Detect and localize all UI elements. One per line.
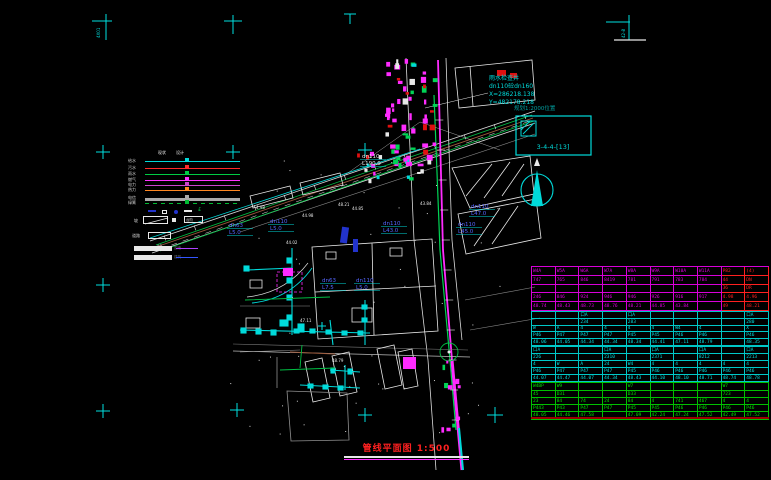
legend-steps-box: 台阶 [184,216,203,223]
corner-note-tr: 42-8 [621,28,626,38]
table-cell [627,285,651,293]
title-underline-accent [344,459,469,460]
corner-annotations: 4X01 42-8 [96,27,626,38]
cad-drawing-canvas[interactable]: 4X01 42-8 [0,0,771,480]
table-cell [603,391,627,398]
legend-row-line [145,203,240,204]
table-cell: W6A [579,267,603,276]
table-cell [674,391,698,398]
table-cell: 48.76 [603,302,627,311]
well-table-water-wells-1: 口A口A口A234283280WA4444W44XP46P47P47P47P45… [531,311,769,346]
table-cell: W9 [556,383,580,391]
table-cell: W8A [627,267,651,276]
table-cell: 36 [722,285,746,293]
table-cell: 2371 [651,354,675,361]
table-cell [745,391,769,398]
legend-square-symbol [172,218,176,222]
svg-text:L5.0: L5.0 [356,285,368,291]
table-cell: W10A [674,267,698,276]
table-cell: 口A [745,347,769,354]
table-cell [674,319,698,326]
table-cell: P46 [651,368,675,375]
table-cell: 8212 [698,354,722,361]
legend-row-label: 热力 [128,187,136,193]
table-cell: 口A [627,312,651,319]
table-cell: 846 [556,293,580,302]
svg-text:dn110: dn110 [362,154,380,160]
table-cell: D33 [627,391,651,398]
pipe-label: dn110L5.0 [268,219,294,232]
title-text: 管线平面图 [363,444,413,454]
pipe-label: dn110L45.0 [456,222,482,235]
table-cell: 4 [745,398,769,405]
table-cell: P47 [579,332,603,339]
spot-elevation: 43.84 [420,201,432,206]
table-cell: 84 [556,398,580,405]
legend-road-label: 道路 [132,233,140,239]
table-cell: 4 [722,361,746,368]
north-arrow [521,158,553,206]
table-cell: P46 [745,332,769,339]
table-cell: P47 [579,368,603,375]
detail-box-label: 3-4-4-[13] [537,143,570,151]
legend-row-marker [185,195,189,199]
table-cell: P43 [556,405,580,412]
well-table-sewer-wells: W4BPW9W7W745D31D337232384742484474146744… [531,382,769,420]
table-cell: 765 [556,276,580,285]
corner-note-tl: 4X01 [96,27,101,38]
table-cell [556,347,580,354]
table-cell: 2213 [745,354,769,361]
legend-header-existing: 现状 [158,150,166,156]
table-cell: 44.85 [651,302,675,311]
table-cell [745,383,769,391]
table-cell: P46 [532,368,556,375]
table-cell: 24 [603,361,627,368]
table-cell: 48.74 [532,302,556,311]
table-cell: 4.96 [745,293,769,302]
legend-row-line [145,174,240,175]
table-cell: 口A [745,312,769,319]
table-cell: D31 [556,391,580,398]
spot-elevation: 48.79 [332,358,344,363]
pipe-label: dn110L190.0 [360,154,386,167]
table-cell: 741 [674,398,698,405]
table-cell: 48.21 [627,302,651,311]
survey-note-line3: X=286218.138 [489,91,535,98]
table-bottom-rule [531,417,769,419]
table-cell: 48.79 [698,339,722,346]
legend-row-marker [185,165,189,169]
svg-text:L5.0: L5.0 [270,226,282,232]
table-cell: W11A [698,267,722,276]
svg-text:dn110: dn110 [471,204,489,210]
table-cell: 946 [603,293,627,302]
table-cell [532,312,556,319]
table-cell [603,312,627,319]
table-cell [674,347,698,354]
table-cell: 747 [532,276,556,285]
table-cell: 4 [651,361,675,368]
well-table-water-wells-2: 口A口A口A口A口A22623102371821222134WA24W44444… [531,346,769,382]
table-cell: 48.78 [745,375,769,382]
legend-road-box: AB [148,232,171,239]
table-cell [698,312,722,319]
table-cell: 8419 [603,276,627,285]
table-cell [556,354,580,361]
table-cell: 44 [722,276,746,285]
table-cell [674,312,698,319]
table-cell: 783 [674,276,698,285]
table-cell: 4 [745,361,769,368]
legend-row-marker [185,187,189,191]
table-cell [579,347,603,354]
table-cell: W [556,361,580,368]
table-cell: 24 [603,398,627,405]
table-cell: P46 [698,405,722,412]
pipe-label: dn110L47.0 [469,204,495,217]
spot-elevation: 47.11 [300,318,312,323]
title-scale: 1:500 [417,444,451,454]
table-cell: 791 [651,276,675,285]
table-cell: 467 [698,398,722,405]
table-cell: 44.10 [651,375,675,382]
table-cell: 48.06 [532,339,556,346]
table-cell: P47 [556,332,580,339]
legend-row-line [145,168,240,169]
svg-text:dn63: dn63 [322,278,336,284]
table-cell: 44.41 [651,339,675,346]
svg-text:dn110: dn110 [458,222,476,228]
legend-slope-box: 坡 [143,216,168,224]
legend-steps-label: 台阶 [186,218,193,223]
table-cell: 784 [698,276,722,285]
table-cell [651,319,675,326]
spot-elevation: 44.85 [352,206,364,211]
table-cell: 23 [532,398,556,405]
table-cell: W5A [556,267,580,276]
legend-header-design: 设计 [176,150,184,156]
table-cell: P46 [722,405,746,412]
pipe-junction-cluster [230,59,500,434]
spot-elevation: 4.98 [256,205,265,210]
table-cell: 74 [579,398,603,405]
pipe-label: dn110L43.0 [381,221,407,234]
survey-note-line1: 雨水检查井 [489,74,519,82]
legend-row-line [145,190,240,191]
table-cell [603,383,627,391]
table-cell: P46 [674,368,698,375]
legend-row-line [145,198,240,201]
table-cell: 916 [674,293,698,302]
table-cell: 280 [745,319,769,326]
table-cell [579,391,603,398]
table-cell: W4 [627,361,651,368]
table-cell: 口A [579,312,603,319]
table-cell [603,285,627,293]
table-cell: 48.73 [579,302,603,311]
table-cell: 口A [698,347,722,354]
legend-row-line [145,180,240,181]
table-cell [722,332,746,339]
table-cell [722,339,746,346]
table-cell: 48.71 [698,375,722,382]
table-cell: 48.43 [627,375,651,382]
table-cell: P45 [627,368,651,375]
table-cell [579,285,603,293]
table-cell: 84 [627,398,651,405]
table-cell: 48.34 [627,339,651,346]
table-cell [722,312,746,319]
table-cell: W4BP [532,383,556,391]
table-cell [698,391,722,398]
table-cell: P47 [603,332,627,339]
legend-row-marker [185,171,189,175]
table-cell: 4 [722,398,746,405]
table-cell: 4 [651,398,675,405]
table-cell [698,285,722,293]
table-cell: 246 [532,293,556,302]
drawing-title: 管线平面图 1:500 [344,444,469,460]
table-cell: P46 [532,332,556,339]
svg-text:L47.0: L47.0 [471,211,487,217]
table-cell: 48.43 [556,302,580,311]
table-cell: 49 [722,302,746,311]
legend-row-marker [185,200,189,204]
table-cell: P46 [674,332,698,339]
table-cell: 4 [698,361,722,368]
survey-note-line2: dn110砼dn160 [489,82,533,90]
table-cell: 917 [698,293,722,302]
table-cell: 926 [651,293,675,302]
table-cell: 781 [627,276,651,285]
legend-line-elec-sample [176,257,198,258]
svg-text:dn110: dn110 [356,278,374,284]
svg-text:dn110: dn110 [270,219,288,225]
table-cell: 44.34 [579,339,603,346]
table-cell [579,383,603,391]
table-cell [674,354,698,361]
title-underline [344,456,469,458]
table-cell: 47.11 [674,339,698,346]
table-cell: P45 [651,332,675,339]
table-cell [722,347,746,354]
table-cell: 2310 [603,354,627,361]
table-cell: 口A [651,347,675,354]
svg-text:dn110: dn110 [383,221,401,227]
table-cell: A [579,361,603,368]
table-cell: P46 [698,332,722,339]
table-cell [627,354,651,361]
table-cell [556,319,580,326]
table-cell [603,319,627,326]
table-cell: 723 [722,391,746,398]
table-cell: P46 [745,405,769,412]
table-cell: 4 [532,361,556,368]
survey-note: 雨水检查井 dn110砼dn160 X=286218.138 Y=482178.… [488,74,535,106]
table-cell: 48.21 [745,302,769,311]
svg-text:L190.0: L190.0 [362,161,381,167]
buildings [246,60,541,441]
table-cell [722,319,746,326]
table-cell: 283 [627,319,651,326]
table-cell: 44.47 [556,375,580,382]
svg-text:L7.5: L7.5 [322,285,334,291]
table-cell [674,383,698,391]
pipe-label: dn63L7.5 [320,278,346,291]
legend-line-gas-sample [176,248,198,249]
table-cell: W7 [627,383,651,391]
table-cell [651,285,675,293]
table-cell [651,312,675,319]
detail-index-box: 3-4-4-[13] 规划1:2000位置 [514,104,591,155]
table-cell: W4A [532,267,556,276]
table-cell: 226 [532,354,556,361]
spot-elevation: 44.02 [286,240,298,245]
table-cell: P47 [603,405,627,412]
table-cell [698,319,722,326]
legend-slope-label: 坡 [134,218,138,224]
table-cell: P46 [722,368,746,375]
table-cell [532,285,556,293]
survey-note-line4: Y=482178.218 [488,99,534,106]
legend-row-line [145,185,240,186]
svg-text:L43.0: L43.0 [383,228,399,234]
table-cell: P443 [532,405,556,412]
table-cell: DN [745,276,769,285]
table-cell: 43.84 [674,302,698,311]
table-cell: W7A [603,267,627,276]
table-cell: 48.35 [745,339,769,346]
legend-row-marker [185,177,189,181]
table-cell: W9A [651,267,675,276]
table-cell: P82 [722,267,746,276]
table-cell: P45 [627,332,651,339]
table-cell: P47 [556,368,580,375]
legend-row-line [145,161,240,162]
table-cell [532,319,556,326]
table-cell: 48.74 [722,375,746,382]
svg-text:L45.0: L45.0 [458,229,474,235]
spot-elevation: 48.21 [338,202,350,207]
legend-bar-building [134,255,172,260]
table-cell: P46 [745,368,769,375]
legend-bar-wall [134,246,172,251]
legend-row-marker [185,182,189,186]
table-cell: P45 [651,405,675,412]
well-table-rain-wells: W4AW5AW6AW7AW8AW9AW10AW11AP82(4)74776584… [531,266,769,311]
table-cell: W7 [722,383,746,391]
legend-panel: 现状 设计 给水污水雨水燃气电力热力电信绿篱 £ 坡 台阶 AB 道路 围墙 建… [128,148,248,268]
table-cell: 44.05 [556,339,580,346]
table-cell: 946 [627,293,651,302]
table-cell: 4 [674,361,698,368]
table-cell [651,383,675,391]
legend-row-label: 绿篱 [128,200,136,206]
table-cell [722,354,746,361]
table-cell: P47 [603,368,627,375]
legend-row-label: 给水 [128,158,136,164]
spot-elevations: 44.9848.214.9844.0244.8543.8447.1148.79 [256,201,432,363]
table-cell: (4) [745,267,769,276]
table-cell: 44.34 [603,339,627,346]
table-cell: P45 [627,405,651,412]
spot-elevation: 44.98 [302,213,314,218]
table-cell: 45 [532,391,556,398]
table-cell: DR [745,285,769,293]
table-cell: 846 [579,276,603,285]
table-cell [556,285,580,293]
table-cell [556,312,580,319]
table-cell: P47 [579,405,603,412]
table-cell: 44.07 [532,375,556,382]
table-cell [651,391,675,398]
table-cell [698,302,722,311]
table-cell: 44.34 [603,375,627,382]
legend-row-marker [185,158,189,162]
table-cell: 4.98 [722,293,746,302]
table-cell [698,383,722,391]
table-cell: 924 [579,293,603,302]
table-cell [579,354,603,361]
table-cell: P46 [674,405,698,412]
table-cell: 234 [579,319,603,326]
table-cell: 口A [603,347,627,354]
table-cell [674,285,698,293]
table-cell: 44.07 [579,375,603,382]
table-cell: P46 [698,368,722,375]
table-cell: 48.10 [674,375,698,382]
table-cell [627,347,651,354]
table-cell: 口A [532,347,556,354]
